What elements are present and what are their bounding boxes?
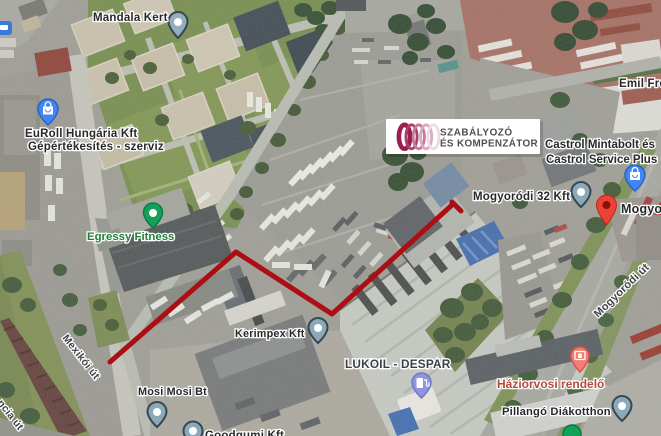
svg-text:Háziorvosi rendelő: Háziorvosi rendelő (497, 377, 604, 391)
svg-text:Castrol Service Plus: Castrol Service Plus (546, 154, 657, 166)
svg-text:Castrol Mintabolt és: Castrol Mintabolt és (545, 139, 655, 151)
svg-text:Mogyoró: Mogyoró (621, 202, 661, 216)
svg-text:Mandala Kert: Mandala Kert (93, 12, 168, 24)
svg-text:Egressy Fitness: Egressy Fitness (87, 231, 174, 243)
svg-text:ÉS KOMPENZÁTOR: ÉS KOMPENZÁTOR (440, 139, 538, 150)
svg-text:EuRoll Hungária Kft: EuRoll Hungária Kft (25, 128, 137, 140)
svg-text:SZABÁLYOZÓ: SZABÁLYOZÓ (440, 127, 513, 139)
svg-text:Goodgumi Kft: Goodgumi Kft (205, 430, 284, 436)
svg-text:Mogyoródi 32 Kft: Mogyoródi 32 Kft (473, 191, 570, 203)
svg-text:Mosi Mosi Bt: Mosi Mosi Bt (138, 386, 207, 398)
svg-text:LUKOIL - DESPAR: LUKOIL - DESPAR (345, 357, 451, 371)
svg-text:Kerimpex Kft: Kerimpex Kft (235, 328, 305, 340)
svg-text:Gépértékesítés - szerviz: Gépértékesítés - szerviz (28, 141, 164, 153)
svg-text:Pillangó Diákotthon: Pillangó Diákotthon (502, 406, 611, 418)
svg-text:Emil Fre: Emil Fre (619, 78, 661, 90)
